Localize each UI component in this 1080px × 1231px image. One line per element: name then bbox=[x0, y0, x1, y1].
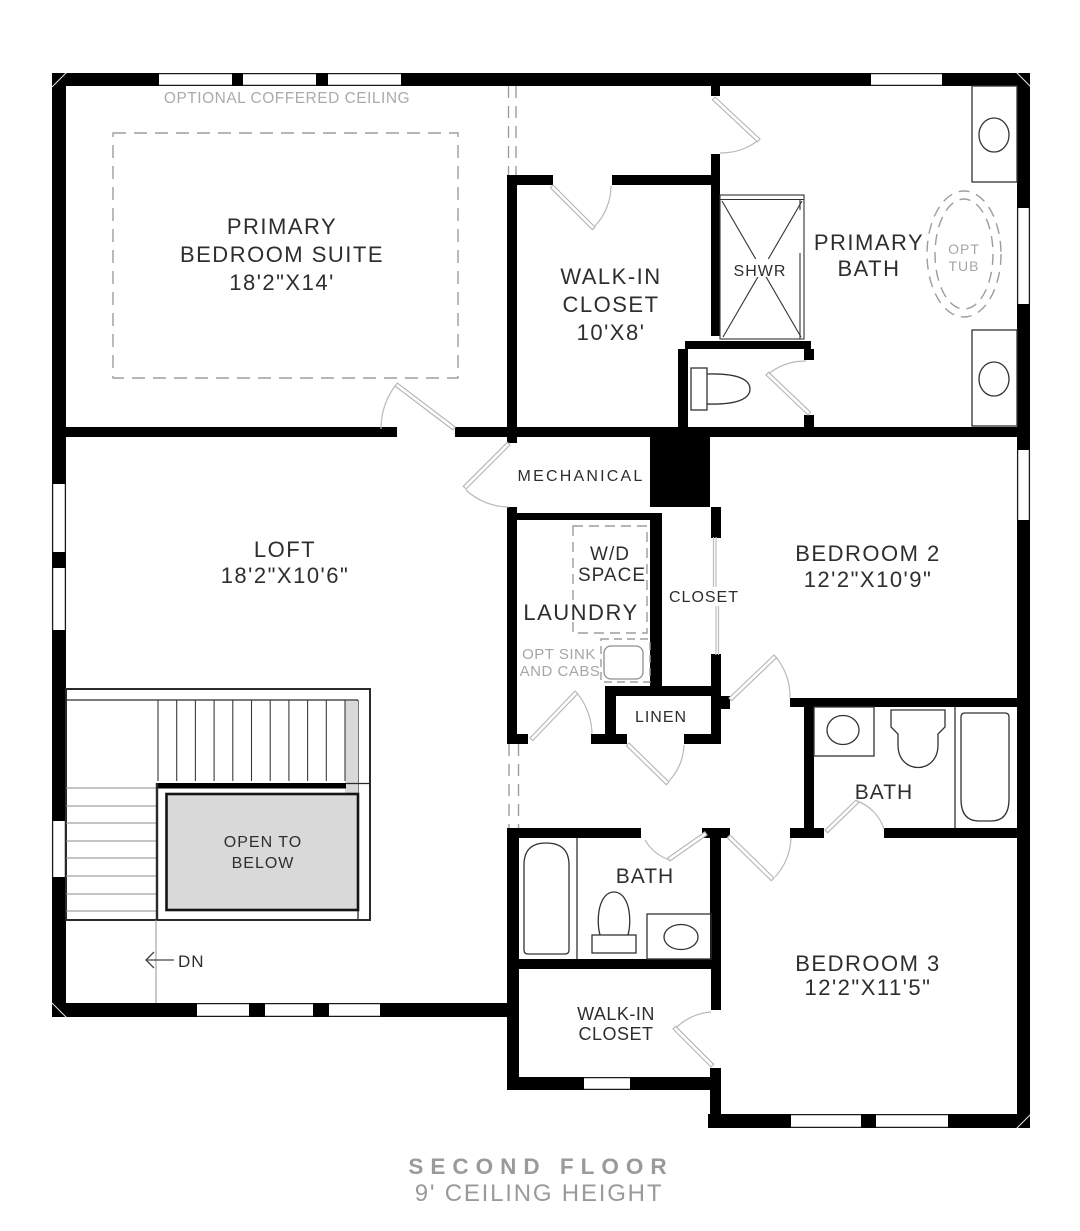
svg-text:18'2"X10'6": 18'2"X10'6" bbox=[221, 563, 350, 588]
svg-text:OPTIONAL COFFERED CEILING: OPTIONAL COFFERED CEILING bbox=[164, 90, 410, 107]
svg-text:PRIMARY: PRIMARY bbox=[814, 230, 924, 255]
svg-text:SECOND FLOOR: SECOND FLOOR bbox=[408, 1154, 673, 1179]
svg-text:12'2"X11'5": 12'2"X11'5" bbox=[805, 975, 932, 1000]
svg-text:BEDROOM 3: BEDROOM 3 bbox=[795, 951, 941, 976]
svg-text:SHWR: SHWR bbox=[734, 263, 787, 280]
svg-text:BEDROOM 2: BEDROOM 2 bbox=[795, 541, 941, 566]
svg-text:OPT: OPT bbox=[948, 241, 980, 257]
svg-text:WALK-IN: WALK-IN bbox=[577, 1004, 655, 1024]
svg-text:OPEN TO: OPEN TO bbox=[224, 834, 302, 851]
svg-text:9' CEILING HEIGHT: 9' CEILING HEIGHT bbox=[415, 1180, 664, 1207]
svg-text:MECHANICAL: MECHANICAL bbox=[518, 468, 645, 485]
svg-text:W/D: W/D bbox=[590, 544, 630, 565]
svg-text:AND CABS: AND CABS bbox=[520, 663, 601, 680]
svg-text:12'2"X10'9": 12'2"X10'9" bbox=[804, 567, 933, 592]
svg-text:LOFT: LOFT bbox=[254, 537, 316, 562]
svg-text:WALK-IN: WALK-IN bbox=[560, 264, 661, 289]
svg-text:BATH: BATH bbox=[855, 781, 913, 804]
svg-text:LAUNDRY: LAUNDRY bbox=[523, 600, 638, 625]
svg-text:SPACE: SPACE bbox=[578, 565, 646, 586]
svg-text:DN: DN bbox=[178, 952, 205, 971]
svg-text:BATH: BATH bbox=[616, 865, 674, 888]
svg-text:TUB: TUB bbox=[949, 258, 980, 274]
svg-text:10'X8': 10'X8' bbox=[577, 320, 646, 345]
svg-text:PRIMARY: PRIMARY bbox=[227, 214, 337, 239]
svg-text:18'2"X14': 18'2"X14' bbox=[229, 270, 335, 295]
svg-text:BATH: BATH bbox=[837, 256, 900, 281]
svg-text:CLOSET: CLOSET bbox=[578, 1024, 653, 1044]
svg-text:BELOW: BELOW bbox=[232, 855, 295, 872]
svg-text:BEDROOM SUITE: BEDROOM SUITE bbox=[180, 242, 384, 267]
svg-text:CLOSET: CLOSET bbox=[669, 589, 739, 606]
svg-text:CLOSET: CLOSET bbox=[562, 292, 659, 317]
svg-text:OPT SINK: OPT SINK bbox=[522, 646, 596, 663]
svg-text:LINEN: LINEN bbox=[635, 709, 687, 726]
